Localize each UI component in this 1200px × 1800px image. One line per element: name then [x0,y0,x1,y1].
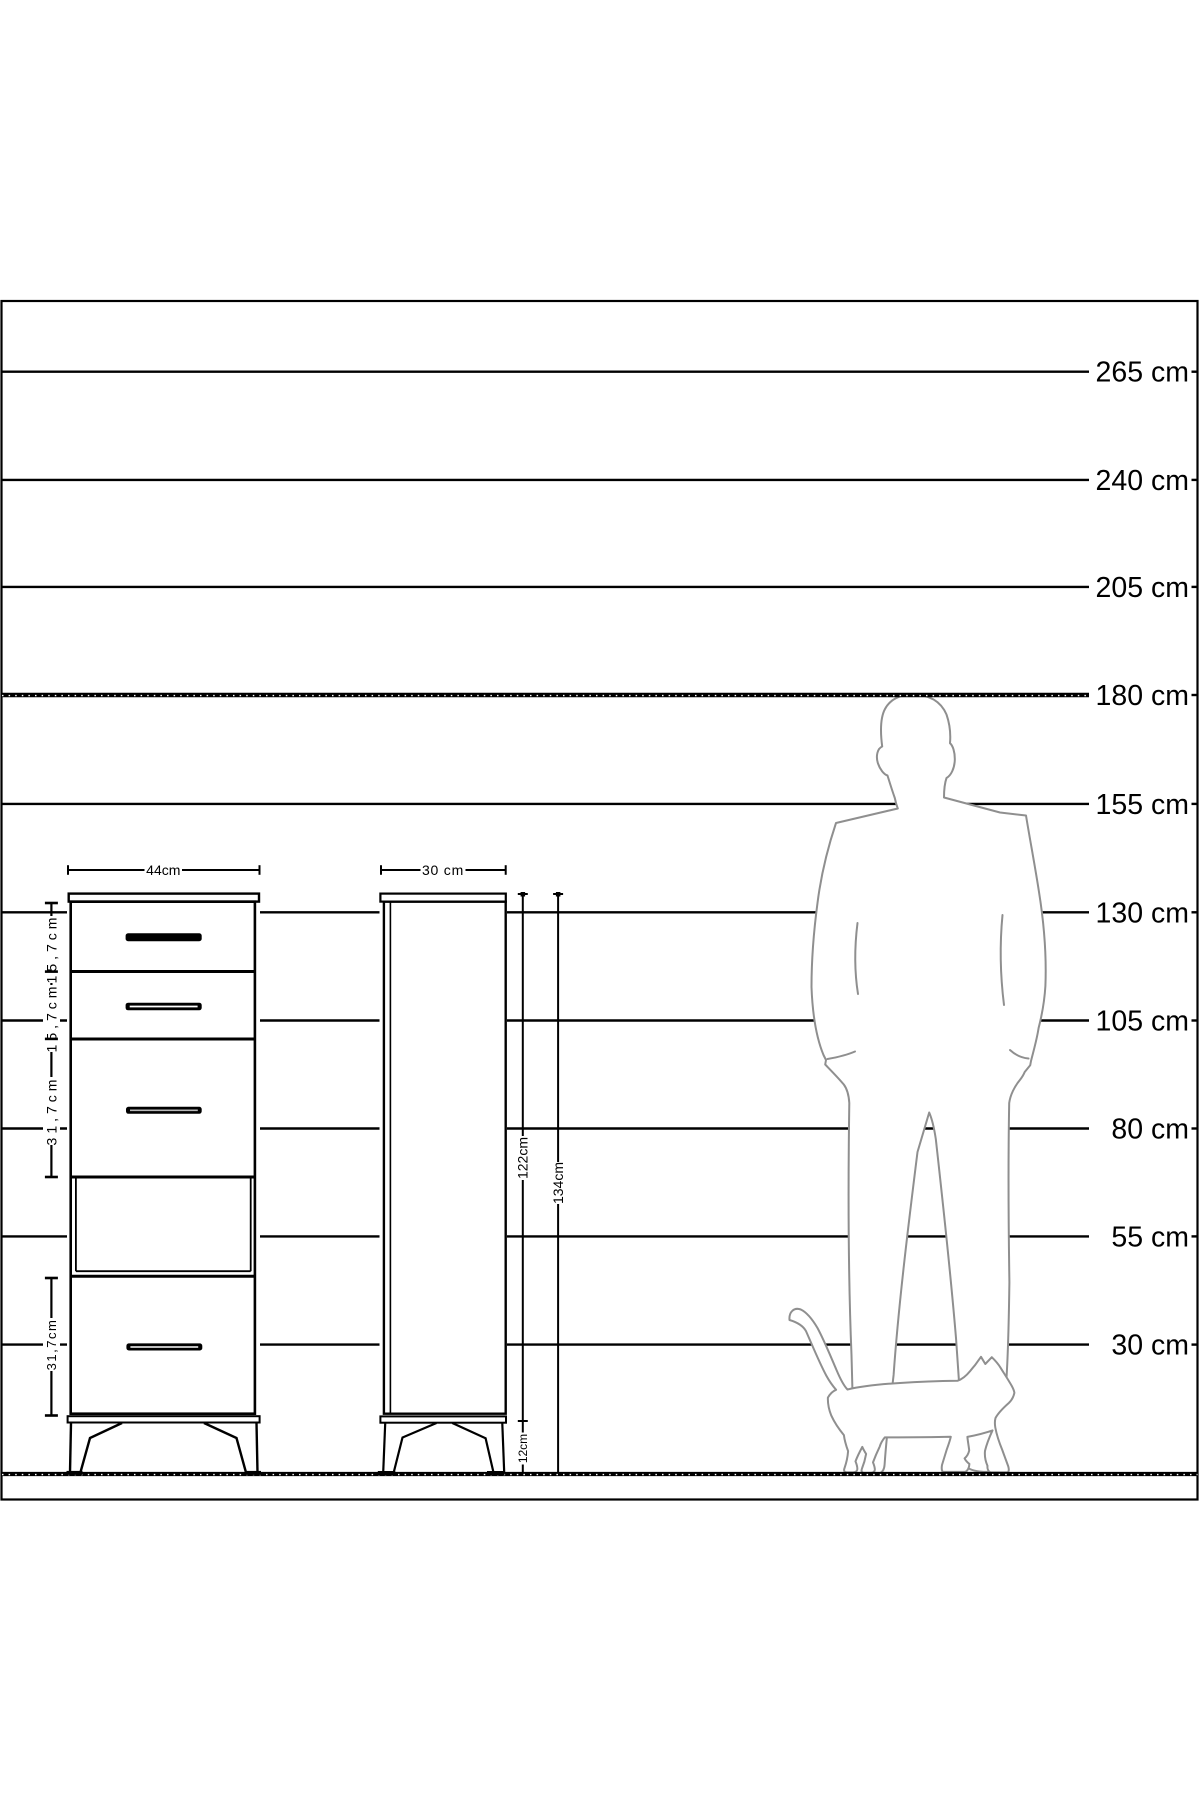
svg-text:155 cm: 155 cm [1096,789,1189,821]
svg-text:15,7cm: 15,7cm [44,914,60,984]
svg-text:15,7cm: 15,7cm [44,983,60,1053]
svg-text:30 cm: 30 cm [1111,1330,1189,1362]
svg-text:130 cm: 130 cm [1096,897,1189,929]
svg-text:134cm: 134cm [550,1162,566,1204]
svg-text:55 cm: 55 cm [1111,1221,1189,1253]
svg-text:80 cm: 80 cm [1111,1114,1189,1146]
svg-text:265 cm: 265 cm [1096,357,1189,389]
svg-text:44cm: 44cm [146,862,180,878]
svg-text:30 cm: 30 cm [422,862,464,878]
svg-text:105 cm: 105 cm [1096,1006,1189,1038]
svg-text:31,7cm: 31,7cm [44,1076,60,1146]
svg-text:122cm: 122cm [515,1137,531,1179]
svg-text:180 cm: 180 cm [1096,680,1189,712]
svg-text:12cm: 12cm [516,1434,530,1463]
svg-text:31,7cm: 31,7cm [44,1319,59,1371]
svg-text:205 cm: 205 cm [1096,572,1189,604]
svg-text:240 cm: 240 cm [1096,465,1189,497]
